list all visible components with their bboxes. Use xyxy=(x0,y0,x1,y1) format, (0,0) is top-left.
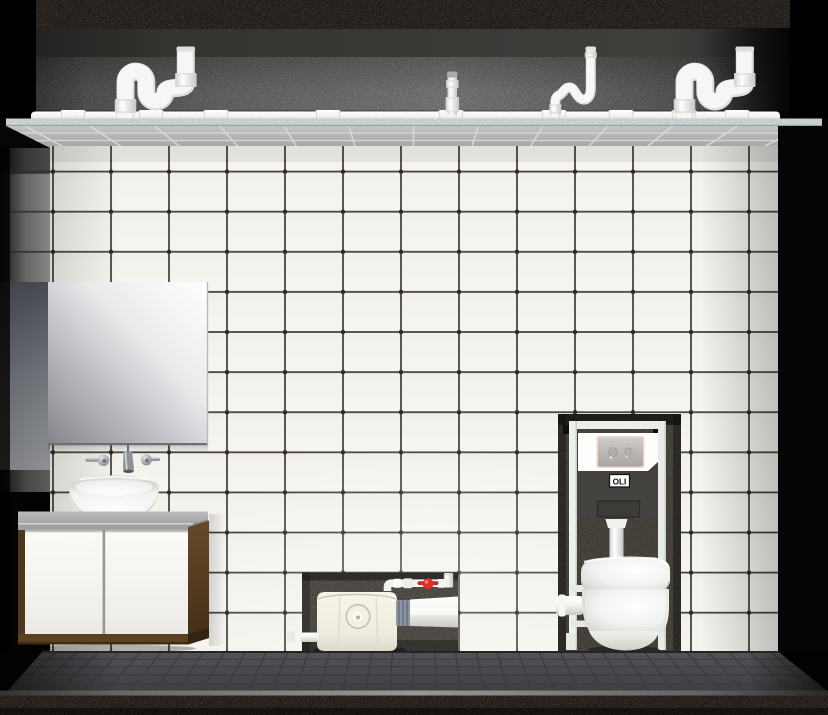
svg-text:OLI: OLI xyxy=(613,477,627,486)
